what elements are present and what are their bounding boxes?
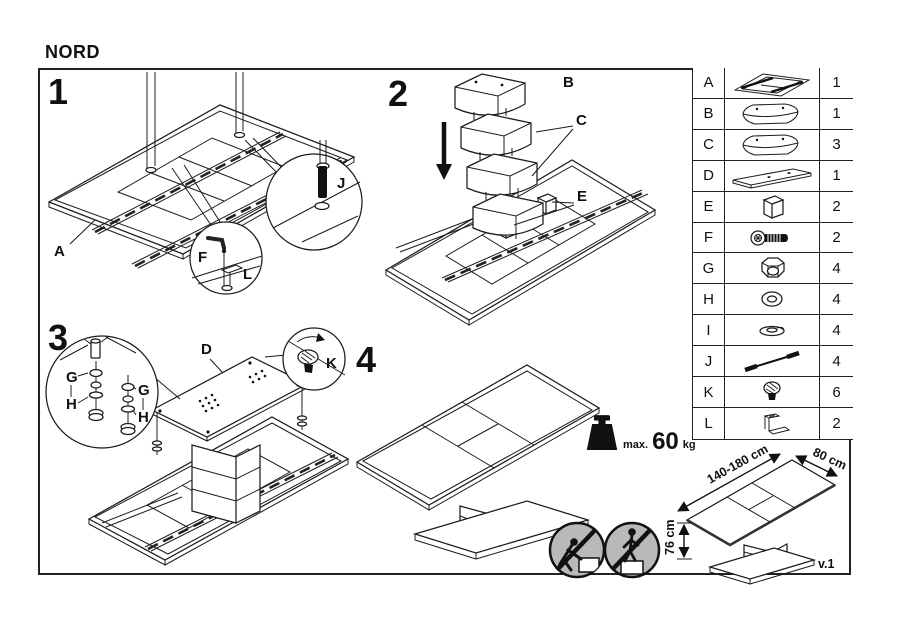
step-3-drawing: D G H bbox=[40, 315, 355, 577]
part-id: A bbox=[693, 68, 725, 98]
part-qty: 1 bbox=[820, 68, 853, 98]
detail-circle-f-l: F L bbox=[190, 222, 262, 294]
threaded-pin-icon bbox=[727, 347, 817, 375]
bolt-icon bbox=[727, 224, 817, 252]
parts-table-row: I 4 bbox=[693, 315, 853, 346]
label-j: J bbox=[337, 175, 345, 192]
part-qty: 2 bbox=[820, 223, 853, 253]
parts-table: A 1 B 1 bbox=[692, 68, 853, 440]
parts-table-row: G 4 bbox=[693, 253, 853, 284]
label-g: G bbox=[66, 369, 78, 386]
part-qty: 6 bbox=[820, 377, 853, 407]
parts-table-row: E 2 bbox=[693, 192, 853, 223]
detail-circle-k: K bbox=[283, 328, 345, 390]
flat-washer-icon bbox=[727, 316, 817, 344]
version-label: v.1 bbox=[818, 557, 834, 571]
product-title: NORD bbox=[45, 42, 100, 63]
parts-table-row: J 4 bbox=[693, 346, 853, 377]
column-segments bbox=[455, 74, 543, 239]
column-segment-icon bbox=[727, 131, 817, 159]
part-qty: 2 bbox=[820, 192, 853, 222]
part-id: B bbox=[693, 99, 725, 129]
width-dimension-label: 80 cm bbox=[811, 445, 849, 473]
part-qty: 4 bbox=[820, 315, 853, 345]
part-id: H bbox=[693, 284, 725, 314]
part-id: I bbox=[693, 315, 725, 345]
label-f: F bbox=[198, 249, 207, 266]
part-id: J bbox=[693, 346, 725, 376]
part-qty: 4 bbox=[820, 253, 853, 283]
l-bracket-icon bbox=[727, 410, 817, 438]
label-e: E bbox=[577, 188, 587, 205]
part-id: G bbox=[693, 253, 725, 283]
part-qty: 2 bbox=[820, 408, 853, 439]
label-g-2: G bbox=[138, 382, 150, 399]
knurled-screw-icon bbox=[727, 378, 817, 406]
column-top-segment-icon bbox=[727, 100, 817, 128]
part-qty: 1 bbox=[820, 99, 853, 129]
label-d: D bbox=[201, 341, 212, 358]
parts-table-row: D 1 bbox=[693, 161, 853, 192]
tabletop-frame-icon bbox=[727, 69, 817, 97]
part-id: L bbox=[693, 408, 725, 439]
weight-icon bbox=[585, 412, 619, 454]
parts-table-row: F 2 bbox=[693, 223, 853, 254]
step-2-drawing: B C E bbox=[380, 70, 680, 322]
parts-table-row: L 2 bbox=[693, 408, 853, 439]
no-dragging-icon bbox=[550, 523, 604, 577]
part-qty: 1 bbox=[820, 161, 853, 191]
part-qty: 4 bbox=[820, 284, 853, 314]
detail-circle-g-h: G H G H bbox=[46, 336, 158, 448]
part-id: F bbox=[693, 223, 725, 253]
parts-table-row: B 1 bbox=[693, 99, 853, 130]
label-b: B bbox=[563, 74, 574, 91]
spacer-block-icon bbox=[727, 193, 817, 221]
parts-table-row: H 4 bbox=[693, 284, 853, 315]
parts-table-row: K 6 bbox=[693, 377, 853, 408]
label-k: K bbox=[326, 355, 337, 372]
label-h: H bbox=[66, 396, 77, 413]
label-c: C bbox=[576, 112, 587, 129]
label-l: L bbox=[243, 266, 252, 283]
part-id: E bbox=[693, 192, 725, 222]
label-h-2: H bbox=[138, 409, 149, 426]
base-plate-icon bbox=[727, 162, 817, 190]
part-qty: 3 bbox=[820, 130, 853, 160]
instruction-sheet: NORD 1 2 3 4 bbox=[0, 0, 900, 636]
part-id: C bbox=[693, 130, 725, 160]
step-1-drawing: J F L A bbox=[40, 70, 375, 315]
dimensions-diagram: 140-180 cm 80 cm 76 cm v.1 bbox=[622, 442, 853, 577]
parts-table-row: C 3 bbox=[693, 130, 853, 161]
part-id: D bbox=[693, 161, 725, 191]
parts-table-row: A 1 bbox=[693, 68, 853, 99]
lock-nut-icon bbox=[727, 254, 817, 282]
washer-icon bbox=[727, 285, 817, 313]
detail-circle-j: J bbox=[266, 140, 362, 250]
height-dimension-label: 76 cm bbox=[663, 520, 677, 555]
part-qty: 4 bbox=[820, 346, 853, 376]
main-frame: 1 2 3 4 bbox=[38, 68, 851, 575]
label-a: A bbox=[54, 243, 65, 260]
part-id: K bbox=[693, 377, 725, 407]
